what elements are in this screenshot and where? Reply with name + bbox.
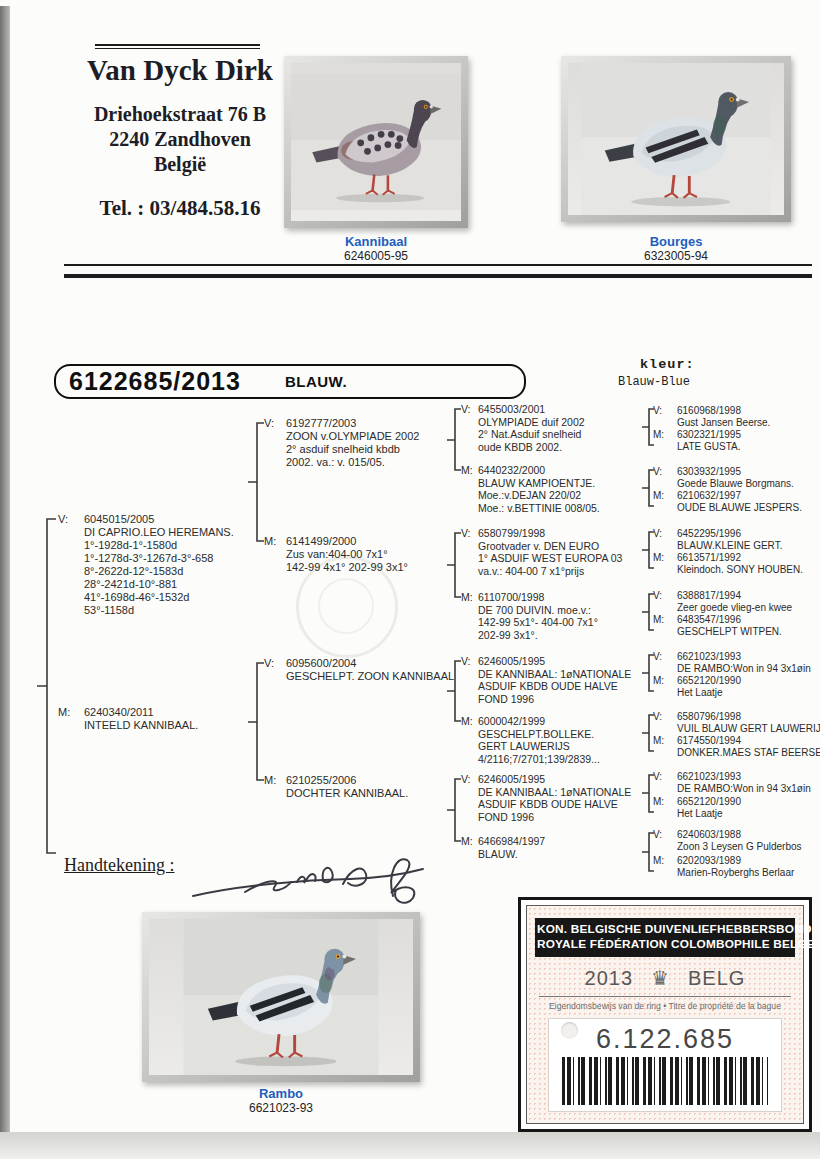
pedigree-entry-gen4-6: M:6613571/1992Kleindoch. SONY HOUBEN. [653, 552, 820, 576]
ring-number: 6388817/1994 [677, 590, 820, 602]
pedigree-text-line: 53°-1158d [84, 604, 284, 617]
rambo-caption: Rambo 6621023-93 [142, 1085, 420, 1116]
ring-number: 6440232/2000 [478, 464, 668, 477]
federation-name-french: ROYALE FÉDÉRATION COLOMBOPHILE BELGE [537, 937, 793, 952]
pedigree-entry-father: V:6045015/2005DI CAPRIO.LEO HEREMANS.1°-… [58, 513, 284, 617]
pedigree-text-line: Het Laatje [677, 687, 820, 699]
parent-role-label: M: [461, 591, 473, 604]
pedigree-text-line: VUIL BLAUW GERT LAUWERIJS [677, 723, 820, 735]
parent-role-label: M: [264, 774, 276, 787]
pedigree-text-line: DI CAPRIO.LEO HEREMANS. [84, 526, 284, 539]
pedigree-text-line: GERT LAUWERIJS [478, 740, 668, 753]
pedigree-entry-gen3-8: M:6466984/1997BLAUW. [461, 835, 668, 860]
address-line-1: Driehoekstraat 76 B [40, 102, 320, 127]
rambo-photo [142, 912, 420, 1082]
ring-number: 6652120/1990 [677, 796, 820, 808]
bird-ring-number: 6122685/2013 [69, 367, 241, 396]
parent-role-label: V: [58, 513, 68, 526]
pedigree-entry-gen2-3: V:6095600/2004GESCHELPT. ZOON KANNIBAAL [264, 657, 481, 683]
card-country: BELG [688, 967, 745, 990]
owner-name: Van Dyck Dirk [40, 54, 320, 87]
pedigree-entry-gen4-16: M:6202093/1989Marien-Royberghs Berlaar [653, 855, 820, 879]
pedigree-entry-gen4-13: V:6621023/1993DE RAMBO:Won in 94 3x1øin [653, 771, 820, 795]
bourges-photo [561, 56, 791, 222]
parent-role-label: V: [264, 417, 274, 430]
header-rule-top [95, 44, 260, 46]
pedigree-entry-gen3-7: V:6246005/1995DE KANNIBAAL: 1øNATIONALEA… [461, 773, 668, 823]
pedigree-text-line: ASDUIF KBDB OUDE HALVE [478, 680, 668, 693]
pedigree-text-line: oude KBDB 2002. [478, 441, 668, 454]
pedigree-entry-gen4-7: V:6388817/1994Zeer goede vlieg-en kwee [653, 590, 820, 614]
parent-role-label: M: [264, 535, 276, 548]
pedigree-text-line: GESCHELPT. ZOON KANNIBAAL [286, 670, 481, 683]
pedigree-entry-gen2-4: M:6210255/2006DOCHTER KANNIBAAL. [264, 774, 481, 800]
parent-role-label: M: [653, 552, 664, 564]
ring-number: 6192777/2003 [286, 417, 481, 430]
pedigree-text-line: 142-99 4x1° 202-99 3x1° [286, 561, 481, 574]
pedigree-text-line: Zus van:404-00 7x1° [286, 548, 481, 561]
ring-number: 6621023/1993 [677, 771, 820, 783]
pedigree-text-line: LATE GUSTA. [677, 441, 820, 453]
bird-color: BLAUW. [285, 373, 347, 390]
ring-number-panel: 6.122.685 [548, 1018, 782, 1112]
bourges-pigeon-illustration [568, 63, 784, 215]
pedigree-entry-gen4-14: M:6652120/1990Het Laatje [653, 796, 820, 820]
pedigree-text-line: FOND 1996 [478, 693, 668, 706]
pedigree-text-line: Marien-Royberghs Berlaar [677, 867, 820, 879]
rambo-ring: 6621023-93 [142, 1101, 420, 1116]
pedigree-text-line: Goede Blauwe Borgmans. [677, 478, 820, 490]
ring-number-box: 6122685/2013 BLAUW. [54, 364, 526, 399]
parent-role-label: V: [461, 527, 471, 540]
ring-number: 6110700/1998 [478, 591, 668, 604]
ring-number: 6141499/2000 [286, 535, 481, 548]
pedigree-text-line: Zeer goede vlieg-en kwee [677, 602, 820, 614]
parent-role-label: V: [653, 590, 662, 602]
pedigree-text-line: 1° ASDUIF WEST EUROPA 03 [478, 552, 668, 565]
ring-number: 6613571/1992 [677, 552, 820, 564]
pedigree-entry-gen4-2: M:6302321/1995LATE GUSTA. [653, 429, 820, 453]
pedigree-text-line: 2° asduif snelheid kbdb [286, 443, 481, 456]
pedigree-text-line: DE RAMBO:Won in 94 3x1øin [677, 783, 820, 795]
card-year: 2013 [585, 967, 634, 990]
parent-role-label: M: [461, 464, 473, 477]
pedigree-text-line: 1°-1278d-3°-1267d-3°-658 [84, 552, 284, 565]
pedigree-entry-gen4-3: V:6303932/1995Goede Blauwe Borgmans. [653, 466, 820, 490]
pedigree-text-line: DONKER.MAES STAF BEERSE [677, 747, 820, 759]
parent-role-label: V: [461, 403, 471, 416]
pedigree-text-line: DE 700 DUIVIN. moe.v.: [478, 604, 668, 617]
parent-role-label: V: [461, 773, 471, 786]
ring-card-inner: KON. BELGISCHE DUIVENLIEFHEBBERSBOND ROY… [526, 905, 804, 1124]
ring-number: 6303932/1995 [677, 466, 820, 478]
kannibaal-pigeon-illustration [291, 63, 461, 221]
pedigree-text-line: 1°-1928d-1°-1580d [84, 539, 284, 552]
pedigree-text-line: Het Laatje [677, 808, 820, 820]
card-ring-number: 6.122.685 [549, 1024, 781, 1055]
parent-role-label: V: [461, 655, 471, 668]
ring-ownership-card: KON. BELGISCHE DUIVENLIEFHEBBERSBOND ROY… [518, 897, 812, 1132]
pedigree-entry-gen2-1: V:6192777/2003ZOON v.OLYMPIADE 20022° as… [264, 417, 481, 469]
owner-phone: Tel. : 03/484.58.16 [40, 196, 320, 221]
parent-role-label: V: [653, 711, 662, 723]
ring-number: 6621023/1993 [677, 651, 820, 663]
parent-role-label: V: [653, 771, 662, 783]
pedigree-text-line: 2° Nat.Asduif snelheid [478, 428, 668, 441]
pedigree-entry-gen4-4: M:6210632/1997OUDE BLAUWE JESPERS. [653, 490, 820, 514]
scan-edge-left [0, 6, 10, 1138]
parent-role-label: V: [653, 651, 662, 663]
kleur-label: kleur: [640, 357, 695, 372]
pedigree-text-line: Moe.: v.BETTINIE 008/05. [478, 502, 668, 515]
bourges-ring: 6323005-94 [561, 249, 791, 264]
kleur-value: Blauw-Blue [618, 375, 690, 389]
ring-number: 6580796/1998 [677, 711, 820, 723]
pedigree-entry-gen4-15: V:6240603/1988Zoon 3 Leysen G Pulderbos [653, 829, 820, 853]
ring-number: 6202093/1989 [677, 855, 820, 867]
owner-address: Driehoekstraat 76 B 2240 Zandhoven Belgi… [40, 102, 320, 177]
ring-number: 6160968/1998 [677, 405, 820, 417]
pedigree-document: Van Dyck Dirk Driehoekstraat 76 B 2240 Z… [0, 0, 820, 1159]
ring-number: 6174550/1994 [677, 735, 820, 747]
card-divider-line [539, 996, 791, 997]
signature-label: Handtekening : [64, 855, 174, 876]
parent-role-label: M: [58, 706, 70, 719]
pedigree-text-line: Moe.:v.DEJAN 220/02 [478, 489, 668, 502]
parent-role-label: V: [653, 528, 662, 540]
pedigree-text-line: FOND 1996 [478, 811, 668, 824]
pedigree-text-line: Gust Jansen Beerse. [677, 417, 820, 429]
pedigree-entry-gen4-5: V:6452295/1996BLAUW.KLEINE GERT. [653, 528, 820, 552]
pedigree-entry-gen3-2: M:6440232/2000BLAUW KAMPIOENTJE.Moe.:v.D… [461, 464, 668, 514]
pedigree-entry-gen2-2: M:6141499/2000Zus van:404-00 7x1°142-99 … [264, 535, 481, 574]
pedigree-text-line: GESCHELPT.BOLLEKE. [478, 728, 668, 741]
pedigree-text-line: 202-99 3x1°. [478, 629, 668, 642]
pedigree-entry-gen3-1: V:6455003/2001OLYMPIADE duif 20022° Nat.… [461, 403, 668, 453]
pedigree-text-line: Zoon 3 Leysen G Pulderbos [677, 841, 820, 853]
ring-number: 6246005/1995 [478, 773, 668, 786]
ring-number: 6483547/1996 [677, 614, 820, 626]
pedigree-text-line: BLAUW.KLEINE GERT. [677, 540, 820, 552]
address-line-2: 2240 Zandhoven [40, 127, 320, 152]
parent-role-label: V: [653, 829, 662, 841]
pedigree-entry-gen4-12: M:6174550/1994DONKER.MAES STAF BEERSE [653, 735, 820, 759]
ring-number: 6455003/2001 [478, 403, 668, 416]
pedigree-text-line: DE KANNIBAAL: 1øNATIONALE [478, 786, 668, 799]
pedigree-entry-gen3-5: V:6246005/1995DE KANNIBAAL: 1øNATIONALEA… [461, 655, 668, 705]
kannibaal-photo [284, 56, 468, 228]
pedigree-text-line: BLAUW. [478, 848, 668, 861]
pedigree-text-line: OLYMPIADE duif 2002 [478, 416, 668, 429]
parent-role-label: M: [653, 675, 664, 687]
rambo-pigeon-illustration [149, 919, 413, 1075]
parent-role-label: M: [653, 855, 664, 867]
ring-number: 6452295/1996 [677, 528, 820, 540]
address-line-3: België [40, 152, 320, 177]
ring-number: 6240340/2011 [84, 706, 284, 719]
pedigree-text-line: OUDE BLAUWE JESPERS. [677, 502, 820, 514]
pedigree-entry-gen4-1: V:6160968/1998Gust Jansen Beerse. [653, 405, 820, 429]
ring-number: 6210255/2006 [286, 774, 481, 787]
ring-number: 6000042/1999 [478, 715, 668, 728]
ring-number: 6210632/1997 [677, 490, 820, 502]
embossed-stamp-watermark-inner [318, 578, 374, 634]
pedigree-text-line: 4/2116;7/2701;139/2839... [478, 753, 668, 766]
parent-role-label: V: [653, 466, 662, 478]
crown-icon: ♛ [651, 966, 670, 990]
kannibaal-ring: 6246005-95 [284, 249, 468, 264]
pedigree-text-line: 41°-1698d-46°-1532d [84, 591, 284, 604]
pedigree-text-line: ASDUIF KBDB OUDE HALVE [478, 798, 668, 811]
pedigree-text-line: 8°-2622d-12°-1583d [84, 565, 284, 578]
parent-role-label: V: [653, 405, 662, 417]
pedigree-text-line: 28°-2421d-10°-881 [84, 578, 284, 591]
parent-role-label: M: [461, 715, 473, 728]
pedigree-entry-gen4-11: V:6580796/1998VUIL BLAUW GERT LAUWERIJS [653, 711, 820, 735]
pedigree-entry-gen4-10: M:6652120/1990Het Laatje [653, 675, 820, 699]
federation-banner: KON. BELGISCHE DUIVENLIEFHEBBERSBOND ROY… [535, 918, 795, 957]
bourges-caption: Bourges 6323005-94 [561, 233, 791, 264]
pedigree-entry-gen3-3: V:6580799/1998Grootvader v. DEN EURO1° A… [461, 527, 668, 577]
pedigree-text-line: Kleindoch. SONY HOUBEN. [677, 564, 820, 576]
parent-role-label: M: [653, 490, 664, 502]
signature-image [185, 852, 435, 914]
pedigree-entry-gen4-9: V:6621023/1993DE RAMBO:Won in 94 3x1øin [653, 651, 820, 675]
ring-number: 6045015/2005 [84, 513, 284, 526]
card-year-row: 2013 ♛ BELG [527, 966, 803, 990]
parent-role-label: M: [653, 429, 664, 441]
header-divider [64, 264, 812, 278]
ring-number: 6302321/1995 [677, 429, 820, 441]
pedigree-text-line: DE KANNIBAAL: 1øNATIONALE [478, 668, 668, 681]
parent-role-label: M: [653, 796, 664, 808]
punch-hole [561, 1022, 578, 1039]
ring-number: 6240603/1988 [677, 829, 820, 841]
pedigree-text-line: Grootvader v. DEN EURO [478, 540, 668, 553]
pedigree-text-line: INTEELD KANNIBAAL. [84, 719, 284, 732]
pedigree-text-line: ZOON v.OLYMPIADE 2002 [286, 430, 481, 443]
pedigree-entry-gen3-6: M:6000042/1999GESCHELPT.BOLLEKE.GERT LAU… [461, 715, 668, 765]
pedigree-text-line: DE RAMBO:Won in 94 3x1øin [677, 663, 820, 675]
pedigree-entry-mother: M:6240340/2011INTEELD KANNIBAAL. [58, 706, 284, 732]
kannibaal-caption: Kannibaal 6246005-95 [284, 233, 468, 264]
pedigree-entry-gen4-8: M:6483547/1996GESCHELPT WITPEN. [653, 614, 820, 638]
pedigree-entry-gen3-4: M:6110700/1998DE 700 DUIVIN. moe.v.:142-… [461, 591, 668, 641]
pedigree-text-line: DOCHTER KANNIBAAL. [286, 787, 481, 800]
scan-edge-bottom [0, 1132, 820, 1159]
pedigree-text-line: 2002. va.: v. 015/05. [286, 456, 481, 469]
rambo-name: Rambo [259, 1086, 303, 1101]
bourges-name: Bourges [650, 234, 703, 249]
parent-role-label: M: [653, 614, 664, 626]
pedigree-text-line: GESCHELPT WITPEN. [677, 626, 820, 638]
ring-number: 6246005/1995 [478, 655, 668, 668]
ownership-text: Eigendomsbewijs van de ring • Titre de p… [527, 1001, 803, 1011]
ring-number: 6652120/1990 [677, 675, 820, 687]
parent-role-label: M: [461, 835, 473, 848]
header-rule-bottom [95, 48, 260, 49]
pedigree-text-line: 142-99 5x1°- 404-00 7x1° [478, 616, 668, 629]
ring-number: 6466984/1997 [478, 835, 668, 848]
barcode [562, 1057, 768, 1105]
parent-role-label: V: [264, 657, 274, 670]
ring-number: 6095600/2004 [286, 657, 481, 670]
ring-number: 6580799/1998 [478, 527, 668, 540]
kannibaal-name: Kannibaal [345, 234, 407, 249]
pedigree-text-line: BLAUW KAMPIOENTJE. [478, 477, 668, 490]
pedigree-text-line: va.v.: 404-00 7 x1°prijs [478, 565, 668, 578]
federation-name-dutch: KON. BELGISCHE DUIVENLIEFHEBBERSBOND [537, 922, 793, 937]
parent-role-label: M: [653, 735, 664, 747]
